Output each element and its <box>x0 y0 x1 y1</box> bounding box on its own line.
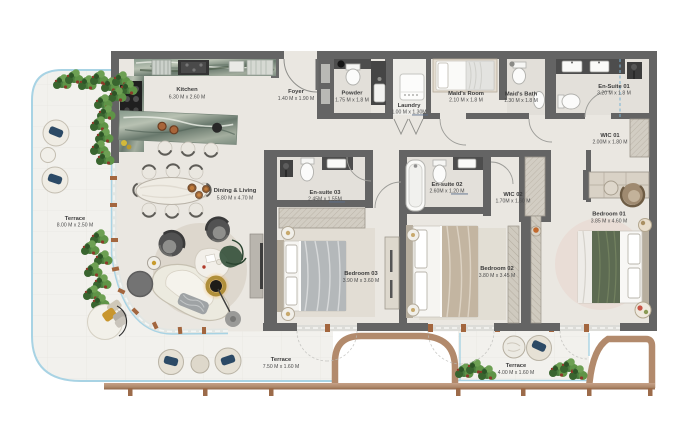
svg-text:1.30 M x 1.8 M: 1.30 M x 1.8 M <box>504 98 538 104</box>
svg-text:1.70M x 1.60 M: 1.70M x 1.60 M <box>495 199 530 205</box>
svg-text:WIC 02: WIC 02 <box>503 192 522 198</box>
svg-text:7.50 M x 1.60 M: 7.50 M x 1.60 M <box>263 364 300 370</box>
svg-text:1.40 M x 1.90 M: 1.40 M x 1.90 M <box>278 96 315 102</box>
svg-text:2.10 M x 1.8 M: 2.10 M x 1.8 M <box>449 98 483 104</box>
svg-text:Terrace: Terrace <box>65 216 86 222</box>
svg-text:6.30 M x 2.60 M: 6.30 M x 2.60 M <box>169 95 206 101</box>
svg-text:3.80 M x 3.45 M: 3.80 M x 3.45 M <box>479 273 516 279</box>
svg-text:4.00 M x 1.60 M: 4.00 M x 1.60 M <box>498 370 535 376</box>
svg-text:Laundry: Laundry <box>398 103 422 109</box>
svg-text:En-suite 03: En-suite 03 <box>310 190 342 196</box>
svg-text:Bedroom 02: Bedroom 02 <box>480 266 514 272</box>
svg-text:2.00M x 1.80 M: 2.00M x 1.80 M <box>592 140 627 146</box>
svg-text:Powder: Powder <box>342 91 364 97</box>
svg-text:Bedroom 01: Bedroom 01 <box>592 212 626 218</box>
svg-text:WIC 01: WIC 01 <box>600 133 620 139</box>
svg-text:3.20 M x 1.8 M: 3.20 M x 1.8 M <box>597 91 631 97</box>
svg-text:Foyer: Foyer <box>288 89 305 95</box>
svg-text:Terrace: Terrace <box>506 363 527 369</box>
svg-text:1.75 M x 1.8 M: 1.75 M x 1.8 M <box>335 98 369 104</box>
svg-text:En-Suite 01: En-Suite 01 <box>598 84 630 90</box>
svg-text:8.00 M x 2.50 M: 8.00 M x 2.50 M <box>57 223 94 229</box>
svg-text:Dining & Living: Dining & Living <box>214 188 257 194</box>
svg-text:Terrace: Terrace <box>271 357 292 363</box>
svg-text:Maid's Room: Maid's Room <box>448 91 484 97</box>
svg-text:5.80 M x 4.70 M: 5.80 M x 4.70 M <box>217 196 254 202</box>
svg-text:Bedroom 03: Bedroom 03 <box>344 271 378 277</box>
svg-text:3.90 M x 3.60 M: 3.90 M x 3.60 M <box>343 278 380 284</box>
svg-text:En-suite 02: En-suite 02 <box>432 182 463 188</box>
svg-text:Kitchen: Kitchen <box>176 87 198 93</box>
svg-text:Maid's Bath: Maid's Bath <box>505 92 538 98</box>
svg-text:3.85 M x 4.60 M: 3.85 M x 4.60 M <box>591 219 628 225</box>
